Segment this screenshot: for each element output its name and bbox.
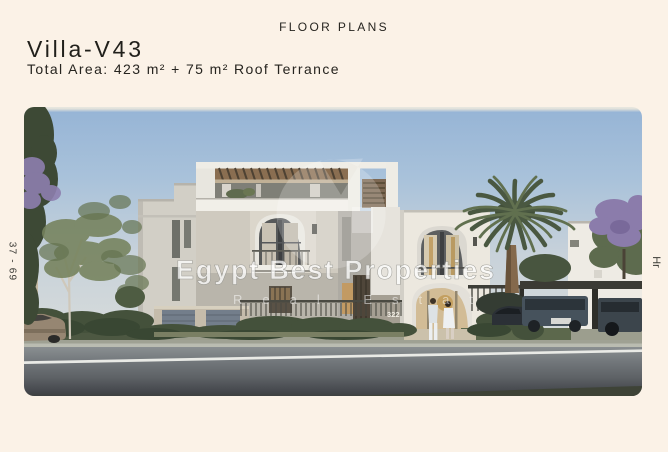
svg-text:Real Estat: Real Estat [233, 292, 493, 307]
svg-text:322: 322 [387, 310, 400, 319]
svg-text:Egypt Best Properties: Egypt Best Properties [176, 255, 496, 285]
